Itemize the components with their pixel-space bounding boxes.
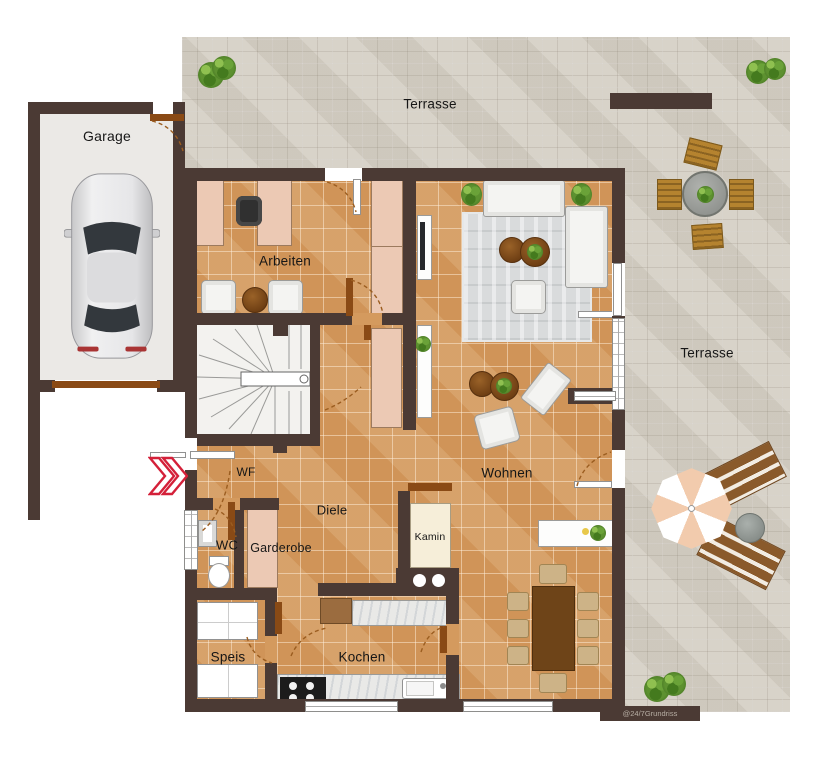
wall [240,498,279,510]
fireplace-mantel [408,483,452,491]
room-label-arbeiten: Arbeiten [259,254,311,268]
log-niche-icon [413,574,426,587]
log-niche-icon [432,574,445,587]
wall [446,655,459,712]
door-leaf [574,481,612,488]
fireplace-base [396,568,459,596]
wall [265,663,277,712]
outdoor-chair-icon [691,223,724,250]
watermark-strip: @24/7Grundriss [600,706,700,721]
wall [318,583,402,596]
wall [403,168,416,430]
door-leaf [613,263,622,316]
parasol-pole [688,505,695,512]
potted-plant-icon [764,58,786,80]
dining-table-icon [532,586,575,671]
sideboard-icon [371,328,402,428]
room-label-terrasse-right: Terrasse [680,346,733,360]
wall [185,699,625,712]
door-opening [265,636,277,663]
wall [185,588,275,600]
office-chair-icon [236,196,262,226]
corner-sofa-icon [565,206,608,288]
room-label-kochen: Kochen [339,650,386,664]
garage-door [52,381,160,388]
outdoor-chair-icon [657,179,682,210]
armchair-icon [201,280,236,315]
wall [310,325,320,446]
floor-plan: Garage Terrasse Terrasse Arbeiten Wohnen… [0,0,834,768]
window-icon [463,701,553,712]
potted-plant-icon [461,183,482,206]
outdoor-side-table-icon [735,513,765,543]
door-leaf [150,114,184,121]
door-leaf [353,179,361,215]
potted-plant-icon [496,378,512,394]
potted-plant-icon [697,186,714,203]
door-opening [213,498,240,510]
potted-plant-icon [527,244,543,260]
wall [273,325,288,336]
outdoor-chair-icon [729,179,754,210]
office-desk-icon [257,176,292,246]
fruit-bowl-icon [582,528,589,535]
toilet-bowl [208,563,230,588]
stove-burner [306,682,314,690]
wardrobe-icon [371,177,403,317]
door-leaf [364,325,371,340]
sink-basin [406,681,434,696]
wall [612,168,625,712]
dining-chair-icon [507,646,529,665]
wall [197,498,213,510]
garage-wall [173,102,185,392]
wall [446,596,459,624]
stove-burner [289,682,297,690]
room-label-garage: Garage [83,129,131,143]
dining-chair-icon [507,592,529,611]
garage-wall [157,380,185,392]
door-leaf [228,502,235,540]
window-icon [184,510,198,570]
sofa-icon [483,180,565,217]
kitchen-counter-icon [320,598,352,624]
wall [185,434,317,446]
door-leaf [190,451,235,459]
door-leaf [275,602,282,634]
door-leaf [346,278,353,316]
room-label-wohnen: Wohnen [481,466,532,480]
door-opening [446,624,459,655]
dining-chair-icon [507,619,529,638]
pantry-shelf-icon [197,602,258,640]
potted-plant-icon [415,336,431,352]
wall [273,446,287,453]
kitchen-counter-icon [352,600,456,626]
window-icon [305,701,398,712]
armchair-icon [511,280,546,314]
dining-chair-icon [577,619,599,638]
room-label-diele: Diele [317,504,348,517]
potted-plant-icon [590,525,606,541]
potted-plant-icon [571,183,592,206]
round-side-table-icon [242,287,268,313]
room-label-wf: WF [236,466,255,478]
staircase-icon [197,325,310,434]
dining-chair-icon [577,592,599,611]
room-label-garderobe: Garderobe [250,542,312,555]
pantry-shelf-icon [197,664,258,698]
door-leaf [440,626,447,653]
window-icon [574,391,616,401]
potted-plant-icon [662,672,686,696]
door-opening [352,313,382,325]
wall-shelf [578,311,613,318]
potted-plant-icon [212,56,236,80]
garage-wall [28,102,40,392]
room-label-terrasse-top: Terrasse [403,97,456,111]
tv-icon [420,222,425,270]
garage-wall [28,380,55,392]
room-label-wc: WC [216,539,238,552]
dining-chair-icon [577,646,599,665]
dining-chair-icon [539,673,567,693]
dining-chair-icon [539,564,567,584]
office-desk-icon [195,176,224,246]
room-label-kamin: Kamin [415,532,446,543]
armchair-icon [268,280,303,315]
garage-wall [28,102,153,114]
wash-basin-icon [198,520,217,547]
privacy-wall [610,93,712,109]
driveway-wall [28,392,40,520]
watermark-text: @24/7Grundriss [623,709,678,718]
door-opening [612,450,625,488]
car-icon [64,168,160,364]
entrance-chevrons-icon [148,455,188,497]
driveway [28,392,185,714]
room-label-speis: Speis [211,650,246,664]
